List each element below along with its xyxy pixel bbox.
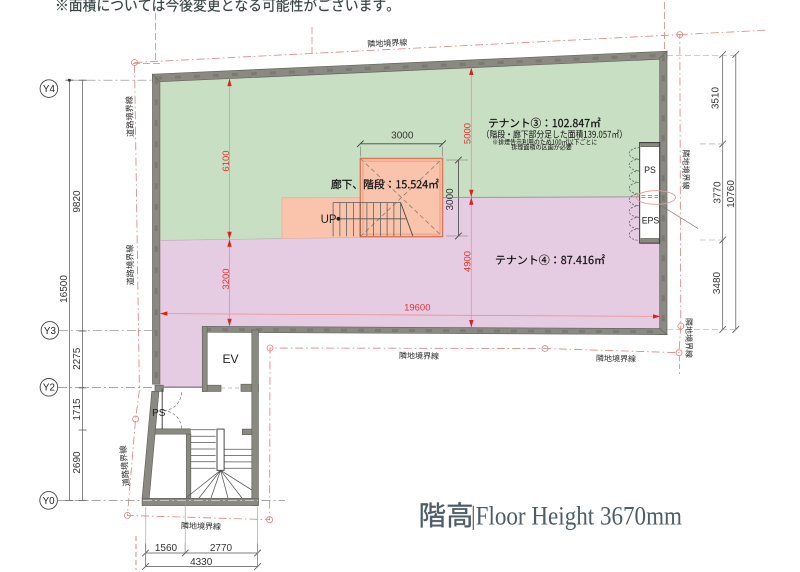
svg-text:3480: 3480 <box>712 271 723 294</box>
svg-text:5000: 5000 <box>463 123 474 144</box>
svg-text:PS: PS <box>152 408 166 419</box>
svg-text:10760: 10760 <box>726 180 737 208</box>
svg-text:6100: 6100 <box>221 150 232 171</box>
svg-text:Y3: Y3 <box>44 326 57 337</box>
svg-text:Y2: Y2 <box>43 383 55 394</box>
svg-text:1715: 1715 <box>72 398 83 421</box>
svg-text:3000: 3000 <box>391 131 414 142</box>
svg-text:3000: 3000 <box>445 188 456 211</box>
svg-text:2275: 2275 <box>72 347 83 370</box>
svg-text:3510: 3510 <box>711 86 722 109</box>
svg-text:4330: 4330 <box>190 557 213 568</box>
svg-text:Y4: Y4 <box>43 84 56 95</box>
svg-text:3770: 3770 <box>713 181 724 204</box>
svg-text:9820: 9820 <box>72 190 83 213</box>
svg-text:19600: 19600 <box>404 303 430 314</box>
svg-text:2690: 2690 <box>72 451 83 474</box>
svg-text:UP: UP <box>321 214 337 226</box>
svg-text:3200: 3200 <box>221 268 232 289</box>
svg-text:2770: 2770 <box>210 543 233 554</box>
svg-text:1560: 1560 <box>155 543 178 554</box>
svg-text:4900: 4900 <box>463 251 474 272</box>
svg-text:PS: PS <box>644 165 656 175</box>
svg-text:|Floor Height 3670mm: |Floor Height 3670mm <box>471 502 682 531</box>
svg-text:EPS: EPS <box>642 216 660 226</box>
svg-text:16500: 16500 <box>59 275 70 303</box>
svg-text:EV: EV <box>222 352 238 366</box>
svg-text:Y0: Y0 <box>43 496 56 507</box>
